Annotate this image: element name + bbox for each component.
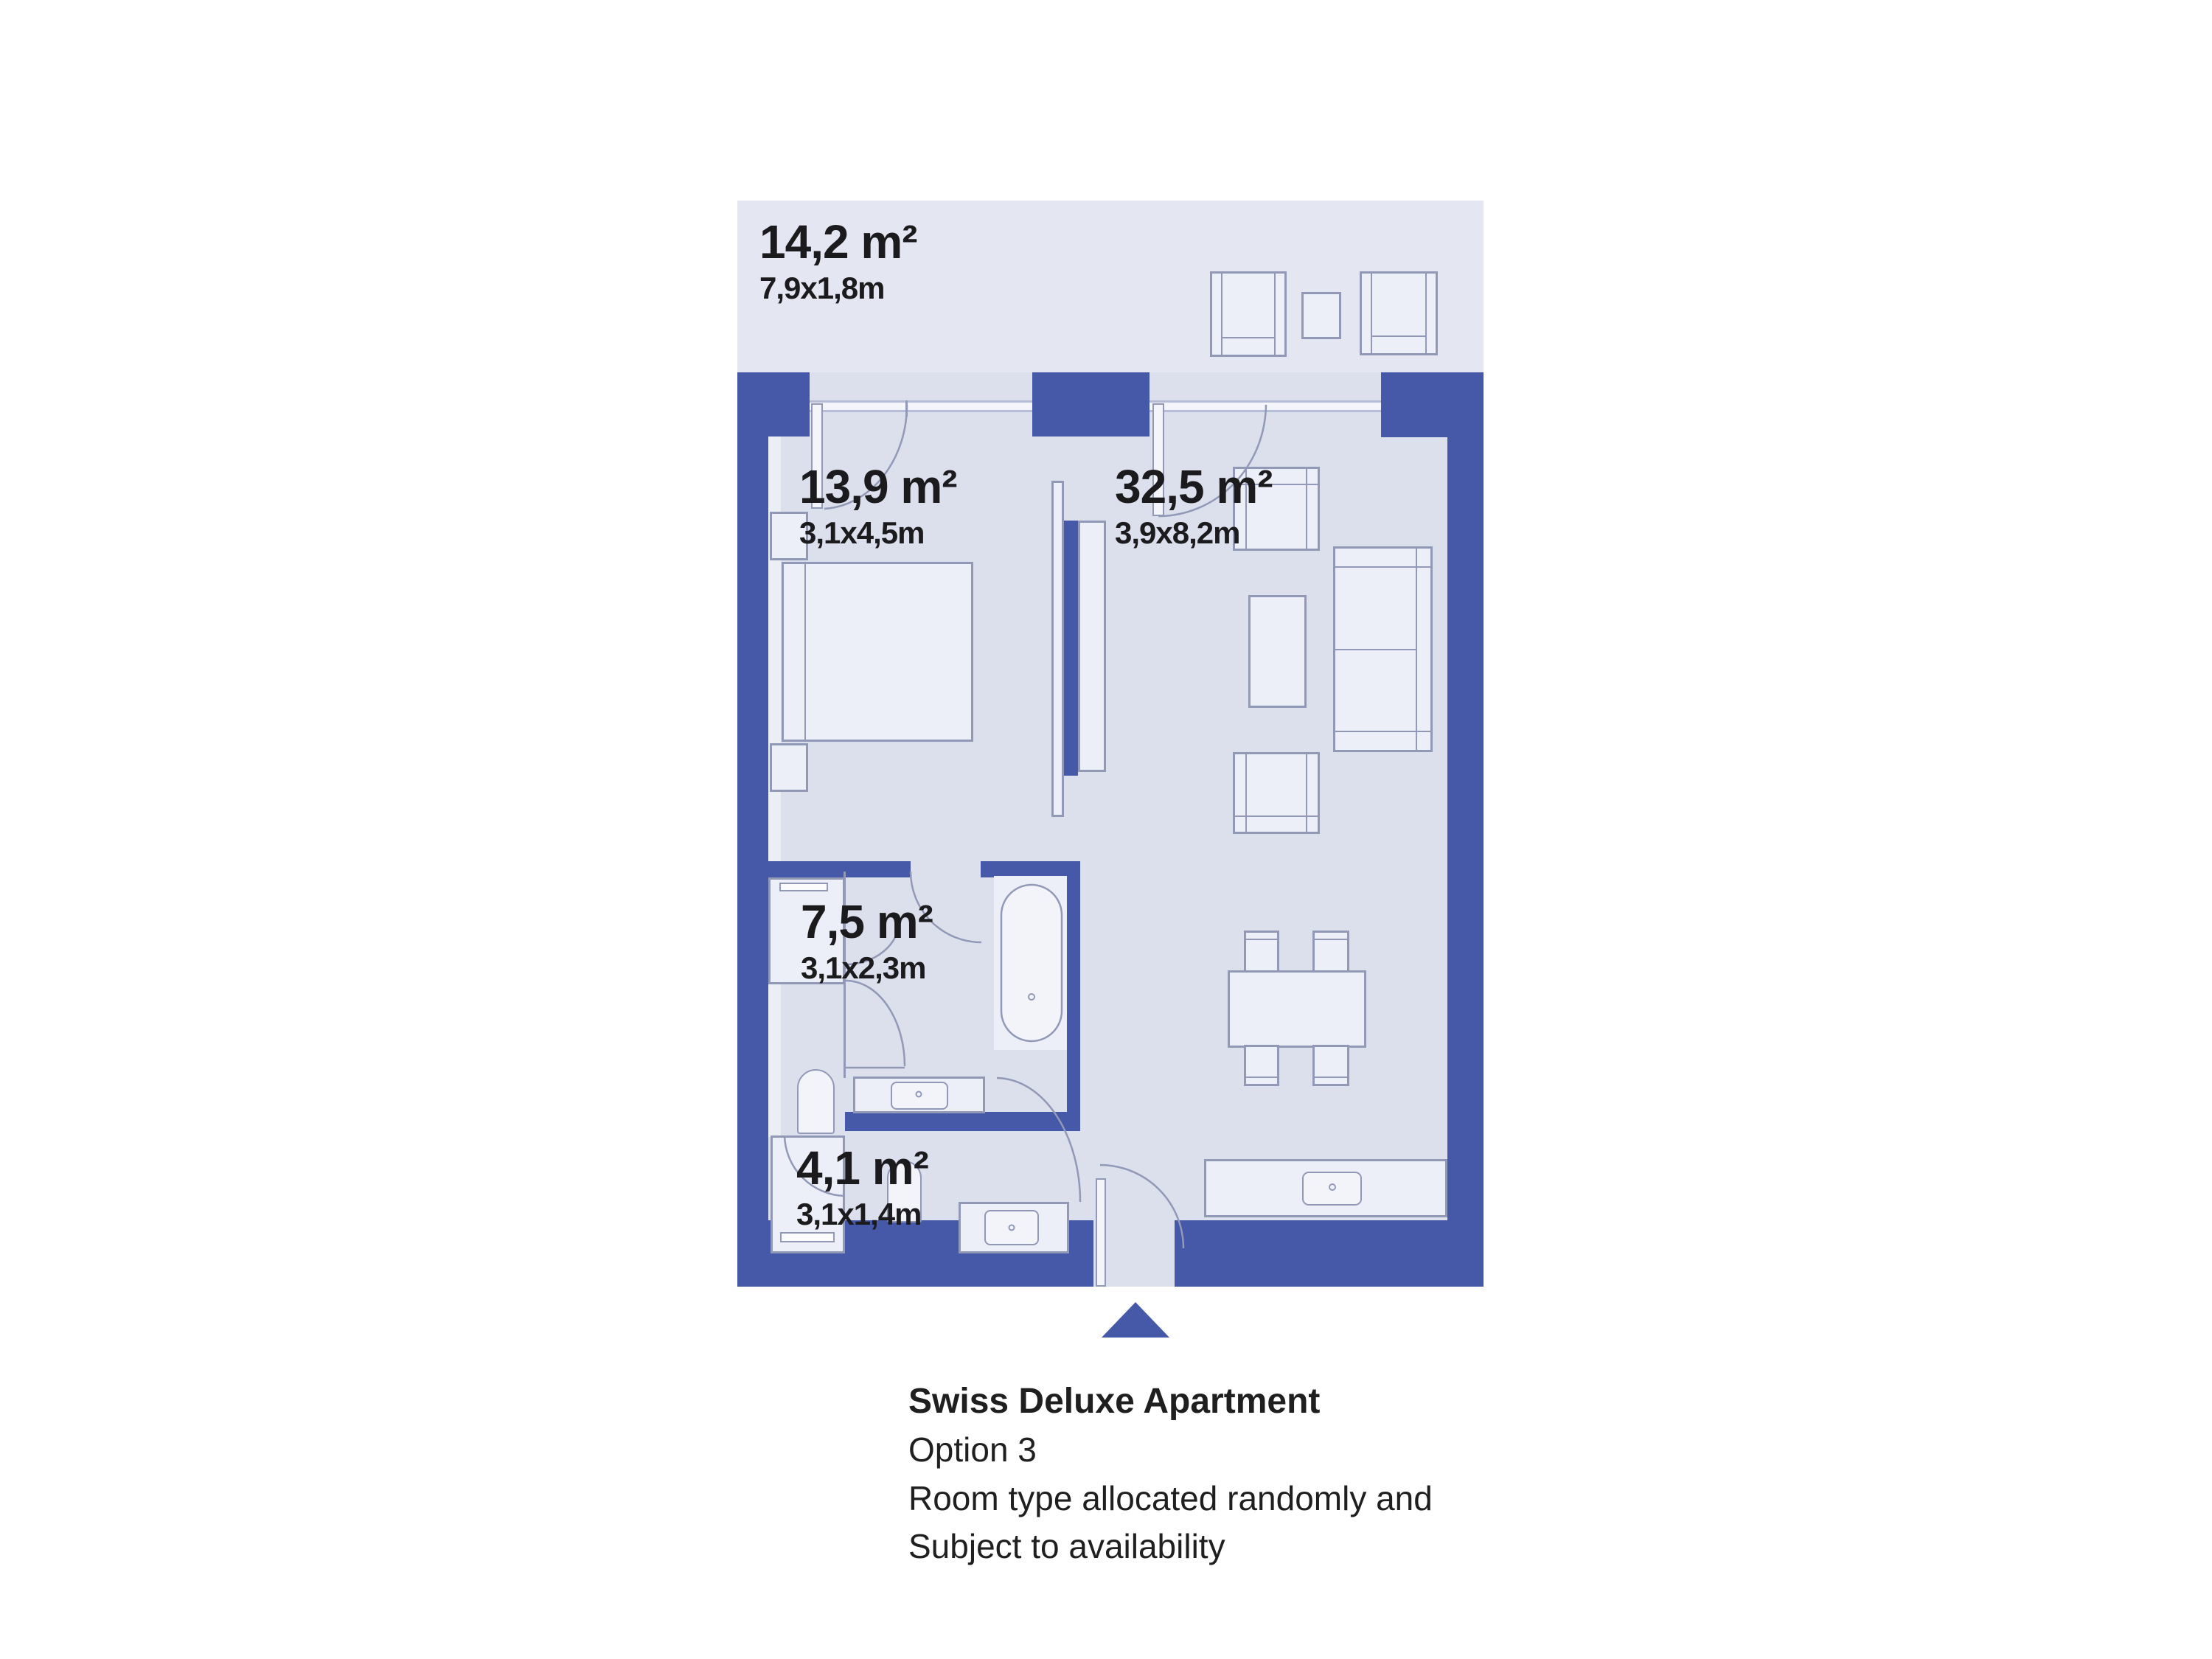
chair-armrest-left xyxy=(1212,274,1222,355)
chair-armrest-right xyxy=(1425,274,1436,353)
bathroom-vanity xyxy=(853,1077,985,1113)
chair-back-line xyxy=(1222,337,1274,338)
dining-chair-1 xyxy=(1244,931,1279,973)
coffee-table xyxy=(1248,595,1307,708)
entry-door-leaf xyxy=(1096,1178,1106,1287)
wall-bathroom-top-right xyxy=(981,861,1080,877)
room-dims: 3,9x8,2m xyxy=(1115,518,1273,549)
kitchen-sink xyxy=(1302,1172,1362,1206)
dining-chair-4 xyxy=(1312,1045,1349,1086)
sofa-arm-bottom xyxy=(1335,731,1430,750)
bed-headboard-line xyxy=(804,564,806,740)
armchair-arm-right xyxy=(1306,469,1318,549)
balcony-chair-left xyxy=(1210,271,1287,357)
wall-bathroom-bottom xyxy=(845,1112,1080,1131)
wall-media-divider xyxy=(1064,521,1078,776)
nightstand-bottom xyxy=(770,743,808,792)
entry-sink xyxy=(984,1210,1039,1245)
room-dims: 7,9x1,8m xyxy=(759,273,917,304)
room-dims: 3,1x4,5m xyxy=(799,518,957,549)
wall-top-middle-block xyxy=(1032,372,1150,437)
room-label-bedroom: 13,9 m² 3,1x4,5m xyxy=(799,463,957,549)
sofa-back xyxy=(1416,549,1430,750)
sofa-arm-top xyxy=(1335,549,1430,568)
entrance-marker-icon xyxy=(1102,1302,1169,1338)
room-dims: 3,1x1,4m xyxy=(796,1199,928,1230)
chair-armrest-left xyxy=(1362,274,1372,353)
wall-top-right-block xyxy=(1381,372,1484,437)
dining-chair-3 xyxy=(1244,1045,1279,1086)
chair-back-line xyxy=(1372,335,1425,337)
shelf-bar xyxy=(780,1232,835,1242)
caption-option: Option 3 xyxy=(908,1426,1572,1474)
chair-armrest-right xyxy=(1274,274,1284,355)
toilet xyxy=(797,1069,835,1134)
armchair-arm-right xyxy=(1306,754,1318,832)
tv-console xyxy=(1078,521,1106,772)
room-area: 13,9 m² xyxy=(799,463,957,510)
kitchen-counter xyxy=(1204,1159,1447,1217)
room-label-living-room: 32,5 m² 3,9x8,2m xyxy=(1115,463,1273,549)
room-dims: 3,1x2,3m xyxy=(801,953,933,984)
sliding-door-panel xyxy=(1051,481,1064,817)
bathroom-sink xyxy=(891,1082,948,1110)
caption-note-1: Room type allocated randomly and xyxy=(908,1475,1572,1523)
room-area: 32,5 m² xyxy=(1115,463,1273,510)
dining-chair-2 xyxy=(1312,931,1349,973)
room-label-balcony: 14,2 m² 7,9x1,8m xyxy=(759,218,917,304)
wall-right xyxy=(1447,372,1484,1287)
wall-left xyxy=(737,372,768,1287)
dining-table xyxy=(1228,970,1366,1048)
room-area: 7,5 m² xyxy=(801,898,933,945)
caption-title: Swiss Deluxe Apartment xyxy=(908,1377,1572,1426)
balcony-table xyxy=(1301,292,1341,339)
room-label-bathroom: 7,5 m² 3,1x2,3m xyxy=(801,898,933,984)
window-living-room xyxy=(1150,400,1381,412)
entry-vanity xyxy=(959,1202,1069,1253)
chair-back-line xyxy=(1246,939,1277,940)
floor-plan: 14,2 m² 7,9x1,8m 13,9 m² 3,1x4,5m 32,5 m… xyxy=(0,0,2212,1659)
armchair-bottom xyxy=(1233,752,1320,834)
sofa-cushion-line xyxy=(1335,649,1416,650)
caption-note-2: Subject to availability xyxy=(908,1523,1572,1571)
bed xyxy=(782,562,973,742)
window-mullion xyxy=(905,400,908,417)
chair-back-line xyxy=(1315,1077,1347,1078)
balcony-chair-right xyxy=(1360,271,1438,355)
wall-top-left-block xyxy=(737,372,810,437)
sofa xyxy=(1333,546,1433,752)
bathtub-deck xyxy=(994,876,1067,1050)
chair-back-line xyxy=(1315,939,1347,940)
caption: Swiss Deluxe Apartment Option 3 Room typ… xyxy=(908,1377,1572,1571)
shelf-bar xyxy=(779,883,828,891)
wall-bathroom-living-strip xyxy=(1067,861,1080,1124)
window-bedroom xyxy=(810,400,1032,412)
wall-bathroom-top-left xyxy=(768,861,911,877)
room-area: 4,1 m² xyxy=(796,1144,928,1192)
armchair-arm-left xyxy=(1235,754,1247,832)
room-area: 14,2 m² xyxy=(759,218,917,265)
chair-back-line xyxy=(1246,1077,1277,1078)
room-label-hallway: 4,1 m² 3,1x1,4m xyxy=(796,1144,928,1230)
